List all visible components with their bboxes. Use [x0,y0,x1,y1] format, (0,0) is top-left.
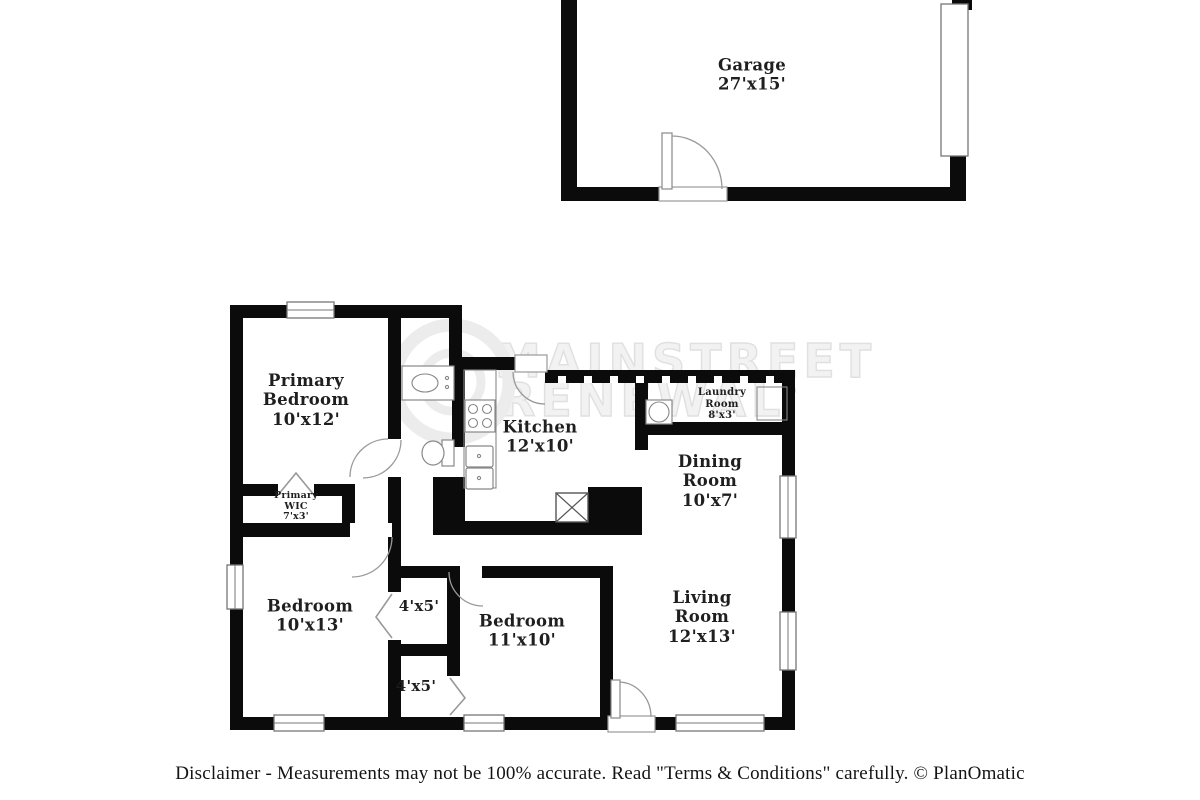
floorplan-drawing [0,0,1200,800]
toilet [422,440,454,466]
garage-overhead-door [941,4,968,156]
room-label-primary-bedroom: Primary Bedroom 10'x12' [246,371,366,429]
closet-top-bifold-door [376,594,392,638]
washer [646,400,672,424]
room-label-closet-bottom: 4'x5' [396,678,437,696]
bathroom-door [363,440,401,478]
room-label-laundry-room: Laundry Room 8'x3' [686,387,758,422]
exterior-back-door [513,355,547,404]
bathroom-vanity [402,366,454,400]
closet-bottom-bifold-door [450,678,465,715]
stove [465,400,495,432]
room-label-closet-top: 4'x5' [399,598,440,616]
primary-bedroom-door [350,439,388,477]
front-door [608,680,655,732]
room-label-primary-wic: Primary WIC 7'x3' [265,491,327,523]
room-label-garage: Garage 27'x15' [718,56,786,95]
kitchen-pantry-hatch [556,493,588,522]
garage-entry-door [659,133,727,202]
bedroom-left-door [350,523,392,577]
room-label-bedroom-middle: Bedroom 11'x10' [479,612,565,651]
floorplan-page: MAINSTREET RENEWAL™ [0,0,1200,800]
room-label-dining-room: Dining Room 10'x7' [662,452,758,510]
kitchen-sink [466,446,493,489]
garage-walls [561,0,972,201]
room-label-living-room: Living Room 12'x13' [654,588,750,646]
room-label-bedroom-left: Bedroom 10'x13' [267,597,353,636]
disclaimer-text: Disclaimer - Measurements may not be 100… [175,763,1025,785]
room-label-kitchen: Kitchen 12'x10' [503,418,578,457]
wall-ticks [558,376,774,383]
